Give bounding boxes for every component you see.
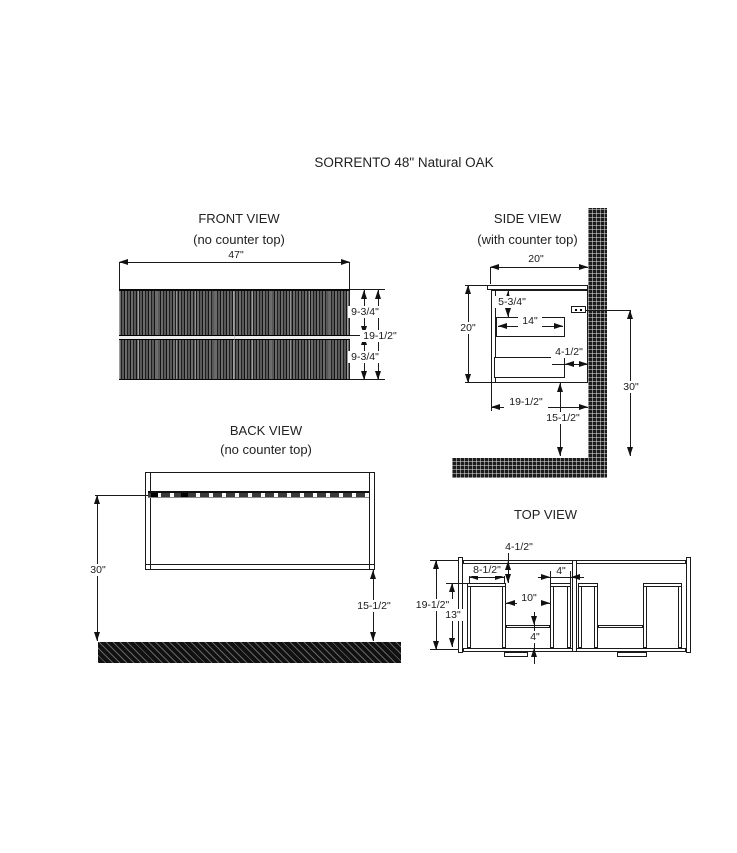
front-arrow <box>375 371 381 380</box>
side-arrow <box>565 361 574 367</box>
side-top-depth-dim-line <box>490 267 588 268</box>
top-view-title: TOP VIEW <box>468 507 623 522</box>
side-wall <box>588 208 607 478</box>
side-drawer-depth-label: 14" <box>518 315 542 327</box>
front-lower-height-label: 9-3/4" <box>348 351 382 363</box>
side-mount-bracket <box>571 306 586 313</box>
back-panel-line <box>150 473 151 569</box>
back-panel-line <box>146 564 374 565</box>
front-ext-line-left <box>119 263 120 289</box>
bracket-dot <box>575 309 577 311</box>
top-arrow <box>449 583 455 592</box>
back-cabinet <box>145 472 375 570</box>
bracket-dot <box>580 309 582 311</box>
side-ext-counter <box>490 268 491 284</box>
side-arrow <box>557 383 563 392</box>
front-view-title: FRONT VIEW <box>139 211 339 226</box>
side-clearance-label: 15-1/2" <box>542 412 584 424</box>
top-arrow <box>449 638 455 647</box>
side-arrow <box>557 447 563 456</box>
top-bay-depth-label: 13" <box>441 609 465 621</box>
top-left-bay-wall <box>550 583 554 648</box>
back-arrow <box>94 632 100 641</box>
top-left-bay-wall <box>567 583 571 648</box>
back-floor <box>98 642 401 663</box>
side-lower-drawer <box>494 357 565 378</box>
top-right-compartment-back <box>643 583 682 587</box>
front-arrow <box>361 371 367 380</box>
top-right-compartment-wall <box>643 583 647 648</box>
side-mount-height-label: 30" <box>620 381 642 393</box>
top-arrow <box>505 561 511 570</box>
side-arrow <box>465 285 471 294</box>
side-arrow <box>465 374 471 383</box>
back-arrow <box>370 632 376 641</box>
top-arrow <box>505 574 511 583</box>
top-right-bay-wall <box>578 583 582 648</box>
back-panel-line <box>369 473 370 569</box>
side-top-depth-label: 20" <box>523 253 549 265</box>
side-arrow <box>505 308 511 317</box>
back-mount-height-label: 30" <box>86 564 110 576</box>
side-bottom-depth-label: 19-1/2" <box>504 396 548 408</box>
front-upper-height-label: 9-3/4" <box>348 306 382 318</box>
back-rail-ext-line <box>95 495 148 496</box>
side-arrow <box>554 323 563 329</box>
top-centerbay-label: 4" <box>552 565 570 577</box>
front-ext-line-right <box>349 263 350 289</box>
side-arrow <box>627 447 633 456</box>
top-shelf-depth-label: 4" <box>527 631 543 643</box>
front-width-arrow-right <box>341 259 350 265</box>
front-width-dim-line <box>119 262 350 263</box>
front-width-dim-label: 47" <box>216 249 256 261</box>
side-arrow <box>579 404 588 410</box>
side-view-title: SIDE VIEW <box>445 211 610 226</box>
top-right-shelf <box>598 625 643 628</box>
side-arrow <box>627 310 633 319</box>
top-arrow <box>433 641 439 650</box>
front-arrow <box>361 290 367 299</box>
rail-clip <box>181 493 188 497</box>
back-arrow <box>94 495 100 504</box>
rail-clip <box>151 493 158 497</box>
top-left-compartment-wall <box>467 583 471 648</box>
back-view-title: BACK VIEW <box>166 423 366 438</box>
top-arrow <box>506 600 515 606</box>
top-back-inset-label: 4-1/2" <box>501 541 537 553</box>
side-view-subtitle: (with counter top) <box>445 232 610 247</box>
side-wall-gap-label: 4-1/2" <box>551 346 587 358</box>
top-left-compartment-wall <box>502 583 506 648</box>
top-arrow <box>541 600 550 606</box>
top-arrow <box>433 560 439 569</box>
top-arrow <box>531 648 537 657</box>
front-center-seam <box>234 291 235 379</box>
top-arrow <box>531 616 537 625</box>
top-left-tab <box>504 652 528 657</box>
side-floor <box>452 458 607 478</box>
back-view-subtitle: (no counter top) <box>166 442 366 457</box>
side-arrow <box>491 404 500 410</box>
top-left-side-panel <box>458 557 463 653</box>
front-view-subtitle: (no counter top) <box>139 232 339 247</box>
front-cabinet <box>119 289 350 380</box>
top-right-side-panel <box>686 557 691 653</box>
side-height-label: 20" <box>455 322 481 334</box>
top-left-bay-back <box>550 583 571 587</box>
side-arrow <box>490 264 499 270</box>
side-arrow <box>579 264 588 270</box>
top-arrow <box>541 574 550 580</box>
top-right-compartment-wall <box>678 583 682 648</box>
back-mount-rail <box>148 491 369 498</box>
top-right-bay-back <box>578 583 598 587</box>
drawing-title: SORRENTO 48" Natural OAK <box>254 155 554 170</box>
top-right-tab <box>617 652 647 657</box>
top-right-bay-wall <box>594 583 598 648</box>
back-arrow <box>370 570 376 579</box>
top-arrow <box>571 574 580 580</box>
side-counter-gap-label: 5-3/4" <box>494 296 530 308</box>
side-mount-ext-line <box>586 310 630 311</box>
top-left-shelf <box>506 625 550 628</box>
top-sidebay-label: 8-1/2" <box>469 564 505 576</box>
top-left-compartment-back <box>467 583 506 587</box>
front-total-height-label: 19-1/2" <box>360 330 400 342</box>
front-arrow <box>375 290 381 299</box>
technical-drawing-sheet: SORRENTO 48" Natural OAK FRONT VIEW (no … <box>0 0 737 853</box>
side-arrow <box>579 361 588 367</box>
side-arrow <box>498 323 507 329</box>
back-clearance-label: 15-1/2" <box>353 600 395 612</box>
front-width-arrow-left <box>119 259 128 265</box>
top-middle-label: 10" <box>517 592 541 604</box>
side-height-dim-line <box>468 285 469 383</box>
